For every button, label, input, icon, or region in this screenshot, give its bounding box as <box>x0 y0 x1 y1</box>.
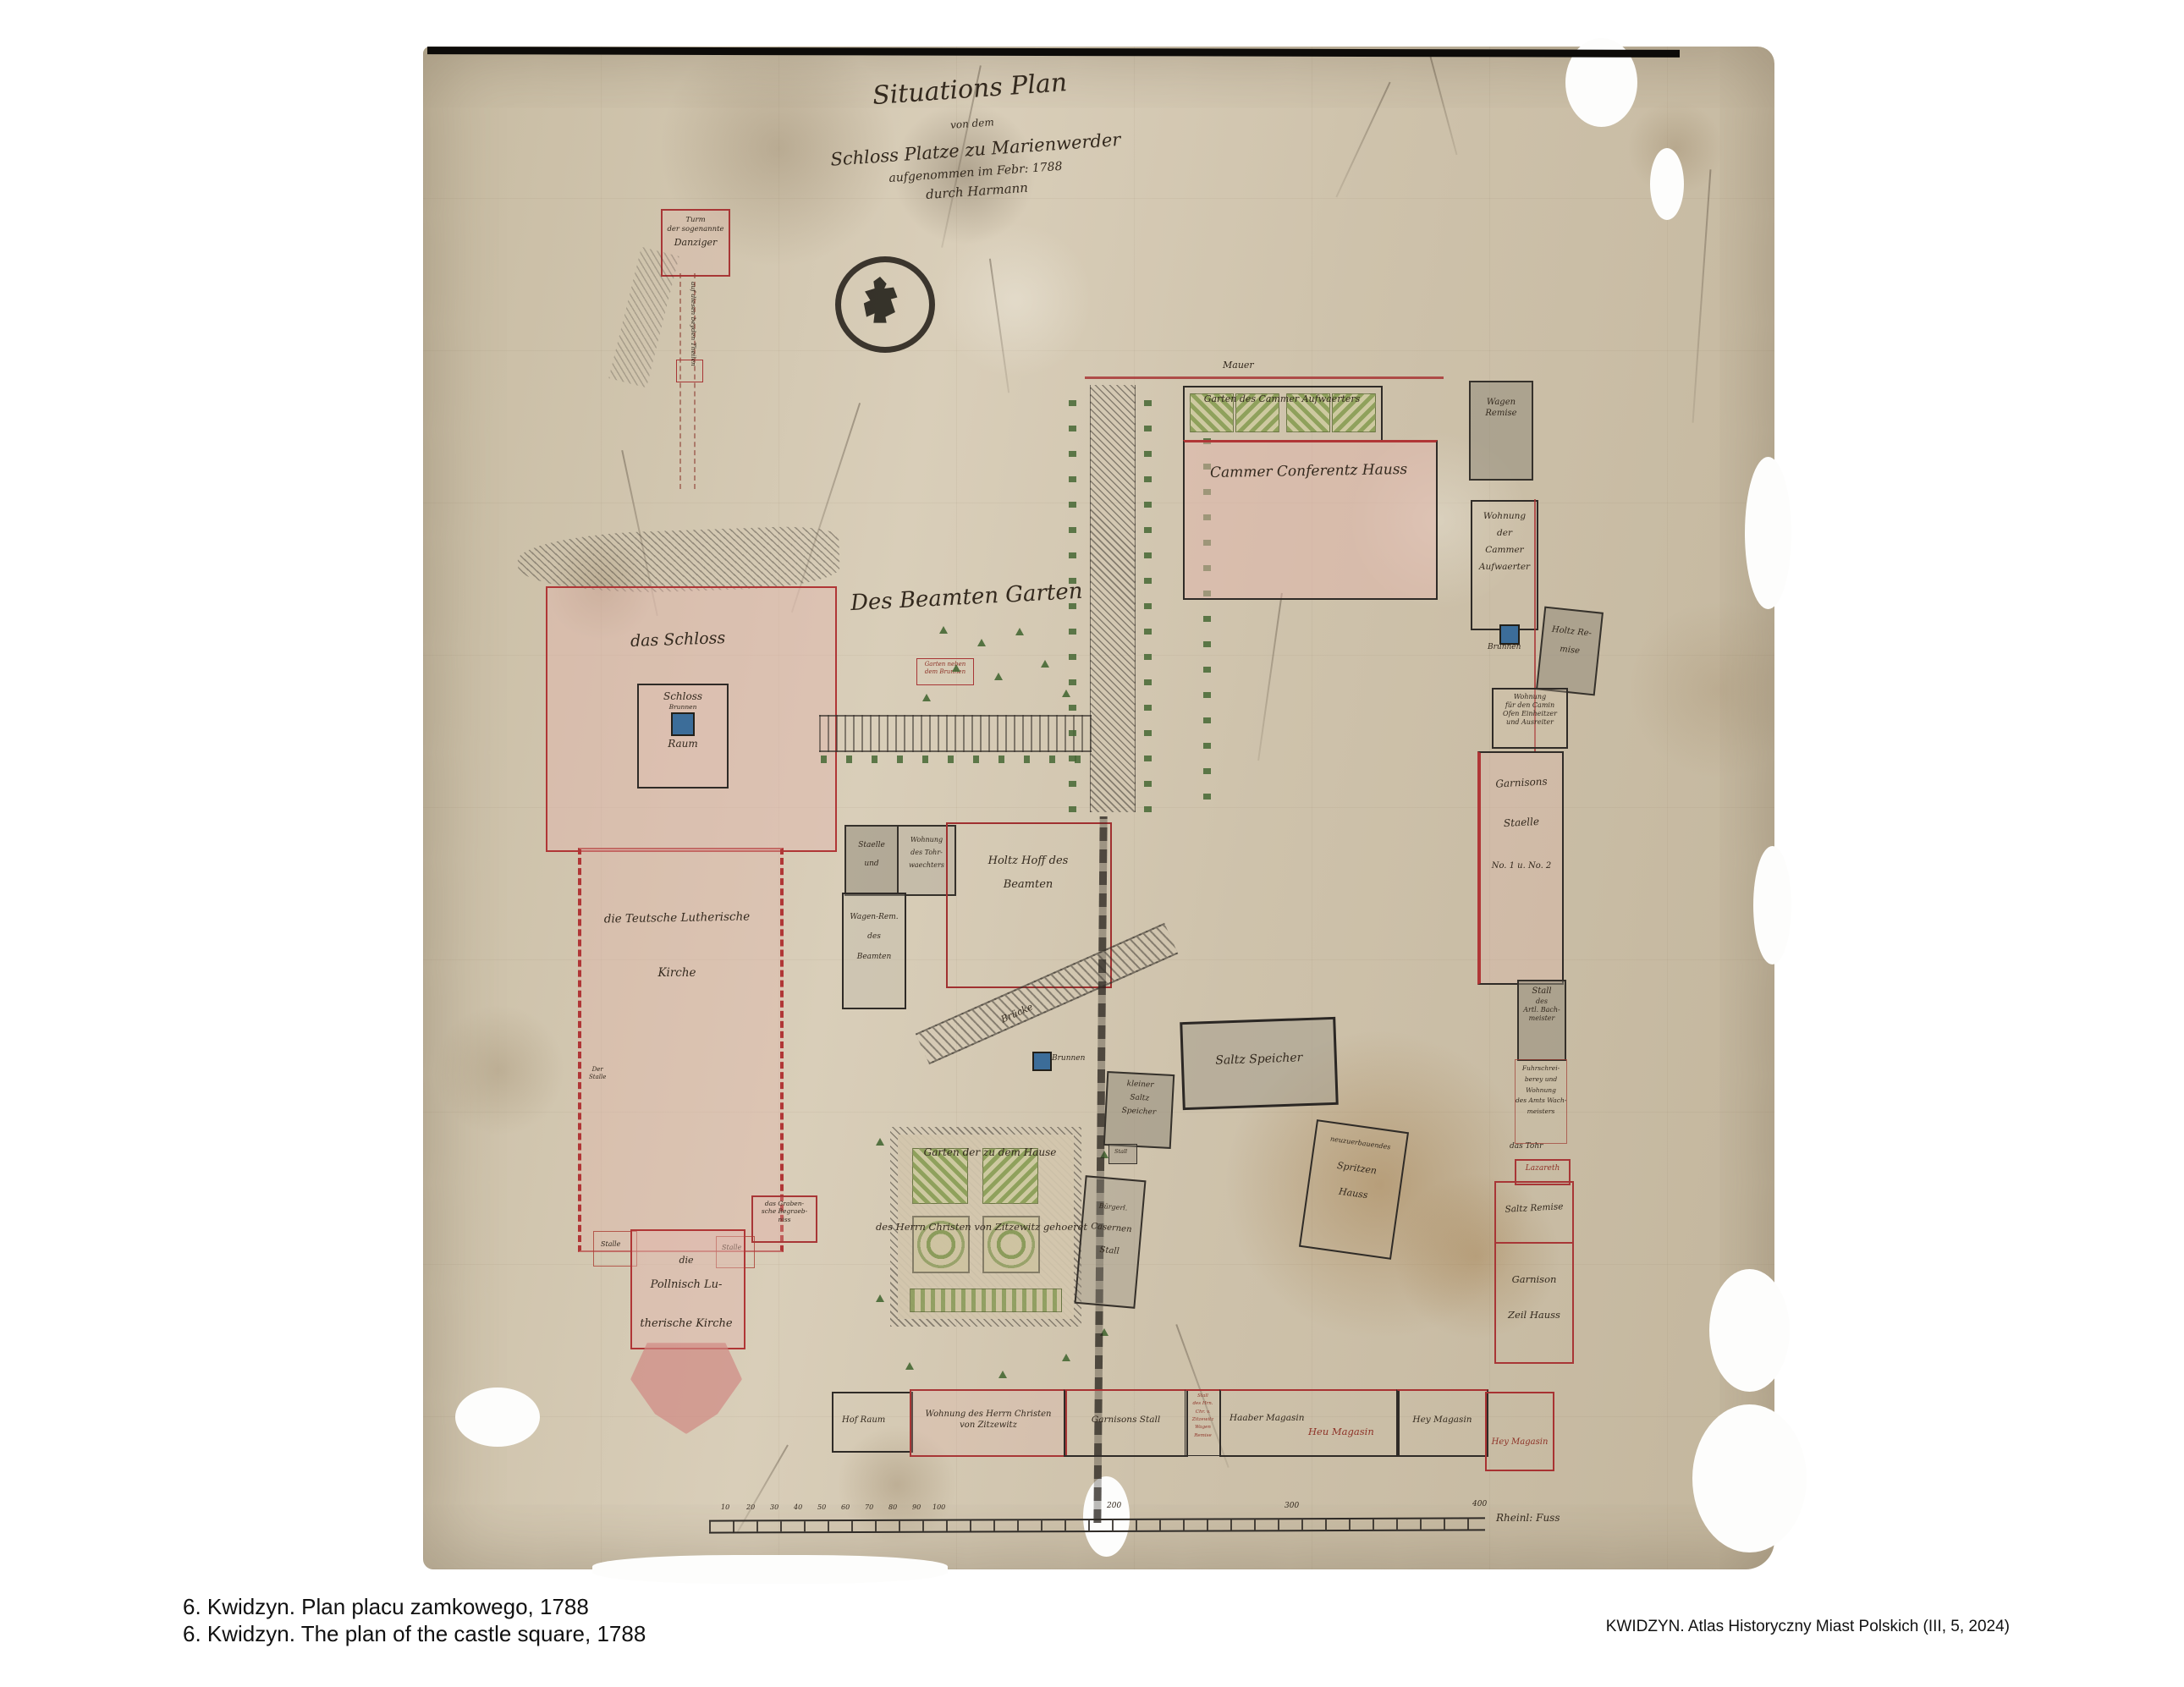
line: Aufwaerter <box>1472 559 1537 576</box>
line: die <box>635 1255 738 1267</box>
scale-tick: 60 <box>841 1503 850 1512</box>
garrison-stall-plot: Garnisons Stall <box>1064 1389 1188 1457</box>
map-scan: Situations Plan von dem Schloss Platze z… <box>423 47 1774 1569</box>
line: No. 1 u. No. 2 <box>1481 861 1562 872</box>
officials-carriage-shed: Wagen-Rem. des Beamten <box>842 893 906 1009</box>
line: von Zitzewitz <box>911 1420 1065 1431</box>
gate-label: das Tohr <box>1510 1142 1543 1151</box>
line: berey und <box>1516 1074 1566 1085</box>
line: Fuhrschrei- <box>1516 1063 1566 1074</box>
line: meisters <box>1516 1107 1566 1118</box>
line: des <box>844 927 905 947</box>
line: Beamten <box>844 948 905 967</box>
small-salt-store: kleiner Saltz Speicher <box>1103 1071 1175 1149</box>
paper-crack <box>1430 57 1458 155</box>
tree-icon <box>977 639 986 646</box>
corridor-note: auf diesen beyden Theilen <box>690 282 697 366</box>
line: Wagen <box>1186 1424 1220 1431</box>
tree-icon <box>922 694 931 701</box>
well-icon <box>1499 624 1520 645</box>
scale-tick: 50 <box>817 1503 826 1512</box>
torn-edge <box>1709 1269 1790 1392</box>
line: Der <box>589 1066 606 1074</box>
line: Raum <box>639 738 727 750</box>
scale-unit: Rheinl: Fuss <box>1496 1512 1560 1525</box>
map-border-line <box>427 47 1680 58</box>
tiny-stable: Stall <box>1109 1144 1137 1164</box>
oat-magazine: Haaber Magasin <box>1219 1389 1400 1457</box>
line: des Amts Wach- <box>1516 1096 1566 1107</box>
castle-label: das Schloss <box>630 629 726 652</box>
zitzewitz-house: Wohnung des Herrn Christen von Zitzewitz <box>910 1389 1067 1457</box>
line: meister <box>1519 1014 1565 1023</box>
scale-tick: 20 <box>746 1503 755 1512</box>
chamber-garden-label: Garten des Cammer Aufwaerters <box>1185 393 1379 405</box>
tree-icon <box>1062 690 1070 697</box>
line: Garten neben <box>917 661 973 668</box>
line: Chr. v. <box>1186 1409 1220 1416</box>
caption-polish: 6. Kwidzyn. Plan placu zamkowego, 1788 <box>183 1594 589 1620</box>
line: die Teutsche Lutherische <box>580 909 774 927</box>
barracks-stable: Bürgerl. Casernen Stall <box>1075 1175 1147 1309</box>
line: Zeil Hauss <box>1496 1309 1572 1321</box>
church-apse <box>630 1343 742 1434</box>
line: Saltz Remise <box>1496 1201 1573 1217</box>
tree-row-icon <box>821 756 1092 763</box>
yard-plot: Hof Raum <box>832 1392 913 1453</box>
tree-icon <box>952 664 960 672</box>
tree-icon <box>1015 628 1024 635</box>
garden-strip <box>910 1289 1062 1312</box>
small-garden-box: Garten neben dem Brunnen <box>916 658 974 685</box>
line: Speicher <box>1106 1103 1171 1120</box>
scale-tick: 300 <box>1285 1502 1299 1511</box>
line: niss <box>753 1216 816 1223</box>
well-icon <box>671 712 695 736</box>
gatekeeper-stable: Staelle und <box>844 825 899 896</box>
line: Wohnung <box>1494 693 1566 701</box>
polish-church-label: die Pollnisch Lu- therische Kirche <box>635 1255 738 1331</box>
well-icon <box>1032 1052 1052 1071</box>
salt-shed: Saltz Remise <box>1494 1181 1574 1244</box>
line: Pollnisch Lu- <box>635 1278 738 1292</box>
tree-icon <box>994 673 1003 680</box>
line: dem Brunnen <box>917 668 973 676</box>
hay-magazine-2: Hey Magasin <box>1485 1392 1554 1471</box>
line: Staelle <box>846 837 897 855</box>
torn-edge <box>455 1388 540 1447</box>
line: Kirche <box>580 966 774 981</box>
line: Ofen Einheitzer <box>1494 710 1566 718</box>
torn-edge <box>1650 148 1684 220</box>
line: Stall <box>1186 1393 1220 1400</box>
atlas-page: Situations Plan von dem Schloss Platze z… <box>0 0 2184 1687</box>
conference-house-label: Cammer Conferentz Hauss <box>1210 461 1408 482</box>
well-label: Brunnen <box>1052 1054 1085 1063</box>
tree-icon <box>939 626 948 634</box>
tree-icon <box>1041 660 1049 668</box>
line: Hey Magasin <box>1398 1415 1487 1426</box>
well-label: Brunnen <box>1488 643 1521 652</box>
line: Turm <box>663 216 729 225</box>
line: therische Kirche <box>635 1317 738 1331</box>
line: Stall <box>1081 1244 1139 1259</box>
line: der <box>1472 525 1537 542</box>
der-stalle-label: Der Stalle <box>589 1066 606 1081</box>
line: Hey Magasin <box>1487 1437 1553 1448</box>
line: Wagen-Rem. <box>844 908 905 927</box>
scale-tick: 90 <box>912 1503 921 1512</box>
scale-tick: 30 <box>770 1503 778 1512</box>
line: sche Begraeb- <box>753 1207 816 1215</box>
scale-tick: 80 <box>888 1503 897 1512</box>
torn-edge <box>592 1555 948 1584</box>
line: Stall <box>1114 1148 1136 1155</box>
torn-edge <box>1753 846 1791 964</box>
red-text-plot: Stall des Hrn. Chr. v. Zitzewitz Wagen R… <box>1185 1389 1221 1456</box>
line: neuzuerbauendes <box>1315 1133 1405 1154</box>
scale-tick: 400 <box>1472 1500 1487 1509</box>
line: Stall <box>1519 986 1565 997</box>
tree-icon <box>998 1371 1007 1378</box>
hay-magazine-red-label: Heu Magasin <box>1308 1426 1374 1437</box>
tree-icon <box>876 1138 884 1146</box>
scale-tick: 200 <box>1107 1502 1121 1511</box>
tree-icon <box>876 1294 884 1302</box>
clerk-office: Fuhrschrei- berey und Wohnung des Amts W… <box>1515 1059 1567 1144</box>
line: Garnisons Stall <box>1065 1415 1186 1426</box>
tree-avenue-vertical <box>1090 385 1136 812</box>
garrison-stables: Garnisons Staelle No. 1 u. No. 2 <box>1477 751 1564 985</box>
torn-edge <box>1692 1404 1807 1552</box>
scale-tick: 70 <box>865 1503 873 1512</box>
line: Haaber Magasin <box>1230 1413 1398 1424</box>
line: des Hrn. <box>1186 1400 1220 1408</box>
line: Remise <box>1471 409 1532 420</box>
tree-icon <box>1062 1354 1070 1361</box>
garden-label-2: des Herrn Christen von Zitzewitz gehoere… <box>863 1221 1100 1233</box>
line: Schloss <box>639 690 727 703</box>
line: Garnisons <box>1481 774 1563 791</box>
line: Wohnung <box>1472 508 1537 525</box>
caption-english: 6. Kwidzyn. The plan of the castle squar… <box>183 1621 646 1647</box>
line: Hof Raum <box>842 1415 911 1426</box>
paper-crack <box>1692 169 1712 422</box>
wood-yard-label: Holtz Hoff des Beamten <box>965 854 1092 893</box>
torn-edge <box>1083 1476 1130 1557</box>
paper-crack <box>1257 593 1283 761</box>
line: Danziger <box>663 237 729 249</box>
german-lutheran-church <box>578 848 784 1252</box>
line: Beamten <box>965 878 1092 892</box>
tree-avenue-horizontal <box>819 715 1092 752</box>
slope-hatching <box>608 247 679 387</box>
line: Wagen <box>1471 398 1532 409</box>
line: und <box>846 855 897 874</box>
line: der sogenannte <box>663 225 729 234</box>
title-line: Situations Plan <box>825 63 1114 115</box>
scale-bar <box>709 1517 1485 1533</box>
line: Holtz Hoff des <box>965 854 1092 868</box>
line: Spritzen <box>1312 1157 1402 1180</box>
ink-stamp-icon <box>835 256 935 353</box>
line: Brunnen <box>639 703 727 711</box>
garrison-house: Garnison Zeil Hauss <box>1494 1242 1574 1364</box>
stoker-house: Wohnung für den Camin Ofen Einheitzer un… <box>1492 688 1568 749</box>
line: Artl. Bach- <box>1519 1006 1565 1014</box>
tree-row-icon <box>1144 389 1152 812</box>
paper-crack <box>989 259 1009 393</box>
line: Wohnung des Herrn Christen <box>911 1409 1065 1420</box>
torn-edge <box>1745 457 1791 609</box>
line: Hauss <box>1308 1181 1399 1205</box>
scale-tick: 10 <box>721 1503 729 1512</box>
line: Garnison <box>1496 1273 1572 1285</box>
hay-magazine: Hey Magasin <box>1396 1389 1488 1457</box>
wood-shed: Holtz Re- mise <box>1536 607 1604 696</box>
line: Remise <box>1186 1432 1220 1440</box>
wall-label: Mauer <box>1223 360 1254 371</box>
fire-engine-house: neuzuerbauendes Spritzen Hauss <box>1299 1119 1409 1260</box>
carriage-shed: Wagen Remise <box>1469 381 1533 481</box>
stamp-eagle-icon <box>853 271 907 330</box>
line: Bürgerl. <box>1084 1201 1142 1214</box>
salt-store: Saltz Speicher <box>1180 1017 1339 1110</box>
castle-well-room: Schloss Brunnen Raum <box>637 684 729 789</box>
line: Wohnung <box>1516 1085 1566 1096</box>
map-title: Situations Plan von dem Schloss Platze z… <box>825 63 1121 209</box>
paper-crack <box>1335 82 1390 198</box>
line: Stalle <box>589 1074 606 1081</box>
officials-garden-label: Des Beamten Garten <box>850 578 1083 618</box>
tree-row-icon <box>1069 389 1076 812</box>
artillery-stable: Stall des Artl. Bach- meister <box>1517 980 1566 1061</box>
line: Saltz Speicher <box>1184 1050 1335 1070</box>
line: Cammer <box>1472 542 1537 559</box>
chamber-servant-house: Wohnung der Cammer Aufwaerter <box>1471 500 1538 630</box>
line: für den Camin <box>1494 701 1566 710</box>
line: das Graben- <box>753 1200 816 1207</box>
scale-tick: 100 <box>932 1503 945 1512</box>
line: Staelle <box>1481 814 1563 831</box>
german-church-label: die Teutsche Lutherische Kirche <box>580 911 774 981</box>
line: Zitzewitz <box>1186 1416 1220 1424</box>
line: Lazareth <box>1516 1164 1569 1173</box>
burial-plot: das Graben- sche Begraeb- niss <box>751 1195 817 1243</box>
scale-tick: 40 <box>794 1503 802 1512</box>
line: des <box>1519 997 1565 1006</box>
tree-icon <box>905 1362 914 1370</box>
line: und Ausreiter <box>1494 718 1566 727</box>
caption-source: KWIDZYN. Atlas Historyczny Miast Polskic… <box>1606 1618 2010 1636</box>
wall-line <box>1085 376 1444 379</box>
garden-label-1: Garten der zu dem Hause <box>901 1146 1079 1159</box>
